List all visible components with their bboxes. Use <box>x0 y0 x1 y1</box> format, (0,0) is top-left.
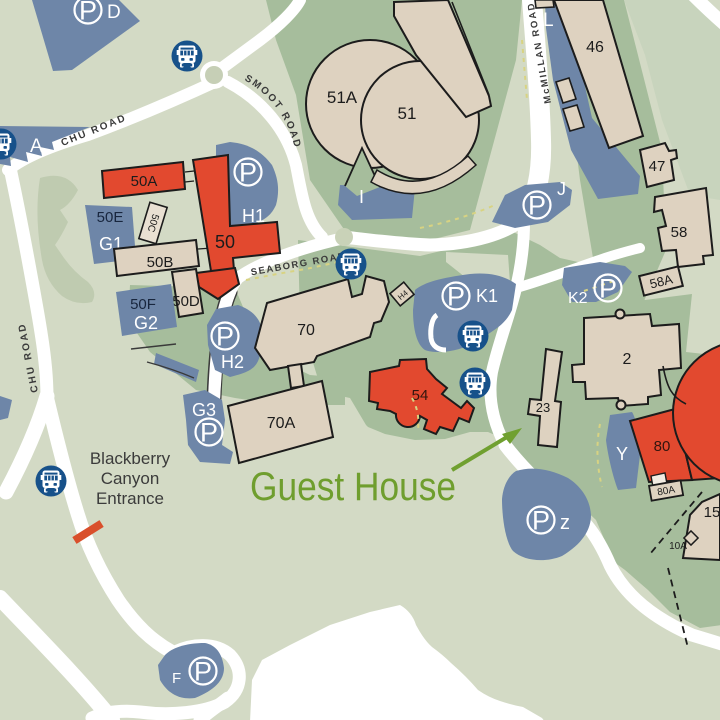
svg-text:K2: K2 <box>568 290 588 307</box>
svg-text:G2: G2 <box>134 313 158 333</box>
svg-text:Canyon: Canyon <box>101 469 160 488</box>
svg-text:2: 2 <box>623 351 632 368</box>
svg-text:Blackberry: Blackberry <box>90 449 171 468</box>
svg-text:15: 15 <box>704 504 720 521</box>
svg-text:Entrance: Entrance <box>96 489 164 508</box>
svg-text:47: 47 <box>649 158 666 175</box>
svg-text:50: 50 <box>215 232 235 252</box>
svg-text:70: 70 <box>297 322 315 339</box>
svg-text:H1: H1 <box>242 206 265 226</box>
svg-text:L: L <box>543 10 554 31</box>
svg-text:50B: 50B <box>147 254 174 271</box>
svg-text:51: 51 <box>398 104 417 123</box>
svg-text:46: 46 <box>586 39 604 56</box>
svg-text:z: z <box>560 512 570 534</box>
svg-text:F: F <box>172 670 181 687</box>
svg-text:50A: 50A <box>131 173 158 190</box>
svg-text:H2: H2 <box>221 352 244 372</box>
svg-text:50E: 50E <box>97 209 124 226</box>
svg-text:70A: 70A <box>267 415 296 432</box>
svg-text:I: I <box>359 187 364 207</box>
svg-text:80: 80 <box>654 438 671 455</box>
svg-text:58: 58 <box>671 224 688 241</box>
svg-text:Guest House: Guest House <box>250 465 456 509</box>
svg-text:10A: 10A <box>669 541 687 552</box>
svg-text:Y: Y <box>616 444 628 464</box>
svg-text:A: A <box>30 136 43 157</box>
svg-text:D: D <box>107 2 121 23</box>
svg-text:51A: 51A <box>327 88 358 107</box>
svg-text:J: J <box>557 179 566 199</box>
svg-text:54: 54 <box>412 387 429 404</box>
svg-text:50D: 50D <box>172 293 200 310</box>
svg-text:K1: K1 <box>476 286 498 306</box>
svg-text:50F: 50F <box>130 296 156 313</box>
svg-text:23: 23 <box>536 400 550 415</box>
